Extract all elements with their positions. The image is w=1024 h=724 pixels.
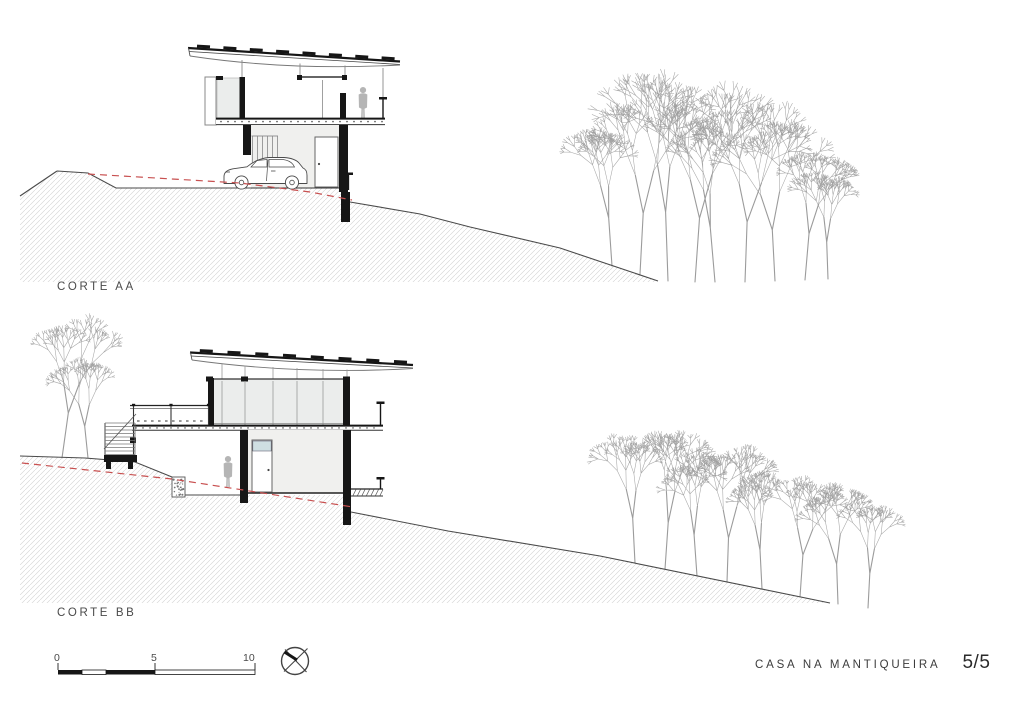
north-compass-icon [282,648,309,675]
mullion [340,93,346,120]
terrain-bb [20,456,830,603]
upper-floor-bb [206,377,350,426]
drawing-sheet: CORTE AA CORTE BB 0 5 10 CASA NA MANTIQU… [0,0,1024,724]
section-label-aa: CORTE AA [57,281,136,293]
glazing-panel [217,78,240,118]
floor-slab-aa [216,118,385,125]
section-bb-drawing [20,313,905,608]
floor-slab-bb [132,425,383,431]
mullion [240,77,246,120]
project-title: CASA NA MANTIQUEIRA [755,659,940,671]
sheet-number: 5/5 [962,652,990,674]
section-label-bb: CORTE BB [57,607,136,619]
transom-window [253,441,271,451]
column [243,125,251,155]
wall [343,378,350,425]
wall [339,125,348,192]
scale-tick-label-10: 10 [243,652,255,664]
wall [240,430,248,503]
stair-platform [104,455,137,462]
roof-aa [188,46,400,67]
wall-panel [205,77,216,125]
trees-group-aa [560,69,860,282]
roof-bb [190,351,413,371]
scale-bar [58,663,255,675]
sections-drawing [0,0,1024,724]
title-block: CASA NA MANTIQUEIRA 5/5 [755,652,995,674]
scale-tick-label-5: 5 [151,652,157,664]
retaining-wall [343,430,351,525]
door [315,137,338,187]
scale-tick-label-0: 0 [54,652,60,664]
human-figure-bb [224,456,233,487]
balconies-bb [351,402,385,497]
retaining-wall [341,192,350,222]
section-aa-drawing [20,46,860,282]
clerestory-mullions-bb [222,364,347,379]
human-figure-aa [359,87,368,118]
